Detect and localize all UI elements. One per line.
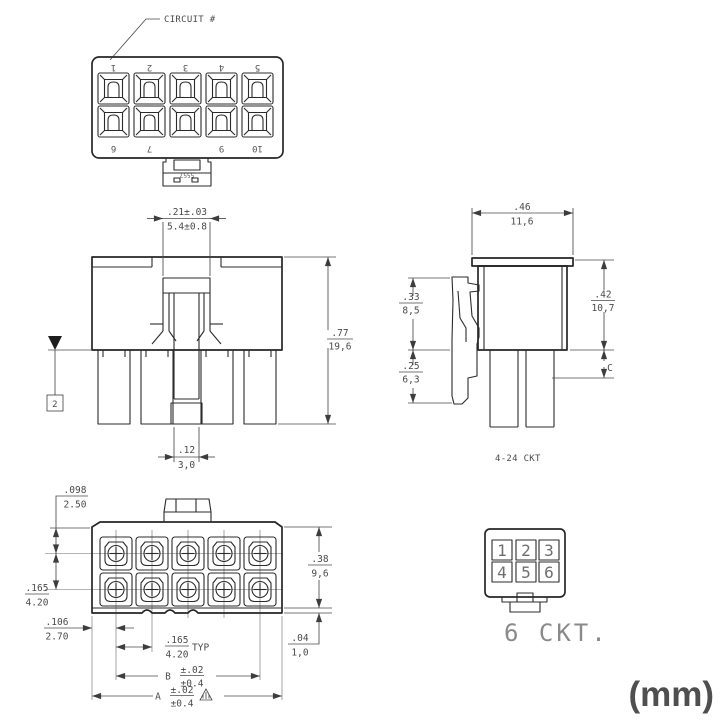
circuit-number-7: 7 — [147, 143, 152, 153]
dim-height-mm: 19,6 — [329, 342, 352, 353]
side-legs — [490, 350, 554, 427]
dim-side-width: .46 11,6 — [472, 202, 573, 255]
dim-face-height: .38 9,6 — [284, 527, 332, 613]
front-view: .21±.03 5.4±0.8 .77 19,6 .12 3,0 — [47, 207, 353, 471]
six-ckt-number-4: 4 — [497, 563, 507, 582]
dim-latch-lower-mm: 6,3 — [402, 375, 419, 386]
circuit-number-10: 10 — [252, 143, 263, 153]
dim-edge-col-mm: 2.70 — [46, 632, 69, 643]
dim-b-label: B — [165, 672, 171, 683]
circuit-number-4: 4 — [219, 62, 224, 72]
dim-edge-row-in: .098 — [64, 485, 87, 496]
dim-side-width-in: .46 — [513, 202, 530, 213]
dim-beam-in: .12 — [178, 445, 195, 456]
circuit-range-note: 4-24 CKT — [495, 454, 541, 464]
six-ckt-number-6: 6 — [544, 563, 554, 582]
center-latch-beam — [150, 278, 223, 424]
terminal-legs — [98, 350, 276, 424]
dim-col-pitch: .165 4.20 TYP — [116, 635, 209, 661]
dim-lip-mm: 1,0 — [291, 648, 308, 659]
dim-latch-upper: .33 8,5 — [399, 278, 450, 350]
flag-triangle-icon — [48, 336, 62, 350]
six-ckt-number-5: 5 — [521, 563, 531, 582]
mating-face-view: .098 2.50 .165 4.20 .106 2.70 .165 4.20 — [25, 485, 332, 710]
dim-a-in: ±.02 — [171, 685, 194, 696]
circuit-number-1: 1 — [111, 62, 116, 72]
dim-latch-lower-in: .25 — [402, 361, 419, 372]
dim-beam-width: .12 3,0 — [158, 427, 215, 471]
dim-a-mm: ±0.4 — [171, 699, 194, 710]
latch-tab: 5557 — [163, 158, 211, 186]
dim-latch-upper-mm: 8,5 — [402, 306, 419, 317]
dim-height-in: .77 — [331, 328, 348, 339]
dim-lip-in: .04 — [291, 633, 308, 644]
dim-col-pitch-in: .165 — [166, 635, 189, 646]
circuit-face-view: CIRCUIT # 1 2 3 4 5 6 7 9 10 5557 — [92, 15, 283, 186]
dim-beam-mm: 3,0 — [178, 460, 195, 471]
dim-latch-upper-in: .33 — [402, 292, 419, 303]
circuit-number-6: 6 — [111, 143, 116, 153]
dim-edge-to-row: .098 2.50 — [50, 485, 90, 554]
dim-side-body-height: .42 10,7 — [570, 260, 615, 350]
circuit-callout-label: CIRCUIT # — [164, 15, 216, 25]
revision-triangle-icon — [200, 689, 212, 700]
circuit-number-5: 5 — [255, 62, 260, 72]
circuit-number-3: 3 — [183, 62, 188, 72]
dim-overall-height: .77 19,6 — [278, 257, 353, 424]
ref-dim-c: C — [552, 350, 614, 378]
six-ckt-caption: 6 CKT. — [504, 619, 609, 647]
dim-lip: .04 1,0 — [288, 613, 319, 659]
circuit-callout-leader — [110, 19, 160, 60]
dim-latch-width: .21±.03 5.4±0.8 — [147, 207, 226, 276]
dim-row-pitch: .165 4.20 — [25, 554, 56, 609]
units-label: (mm) — [628, 675, 714, 714]
part-number-marking: 5557 — [179, 171, 194, 178]
dim-latch-width-mm: 5.4±0.8 — [167, 222, 207, 233]
flag-note-number: 2 — [52, 400, 58, 410]
dim-body-height-in: .42 — [594, 290, 611, 301]
circuit-number-2: 2 — [147, 62, 152, 72]
dim-edge-to-col: .106 2.70 — [44, 617, 134, 643]
side-flange — [472, 258, 573, 266]
face-top-latch — [164, 499, 211, 522]
circuit-number-9: 9 — [219, 143, 224, 153]
dim-row-pitch-in: .165 — [26, 583, 49, 594]
dim-face-height-in: .38 — [311, 554, 328, 565]
dim-side-width-mm: 11,6 — [511, 217, 534, 228]
dim-edge-row-mm: 2.50 — [64, 500, 87, 511]
flag-note-2: 2 — [47, 336, 92, 411]
dim-a: A ±.02 ±0.4 — [92, 685, 282, 710]
dim-row-pitch-mm: 4.20 — [26, 598, 49, 609]
dim-latch-lower: .25 6,3 — [399, 350, 452, 403]
six-ckt-view: 1 2 3 4 5 6 6 CKT. — [485, 529, 609, 647]
latch-hook-arm — [452, 277, 479, 404]
six-ckt-number-2: 2 — [521, 541, 531, 560]
dim-b-in: ±.02 — [181, 665, 204, 676]
face-body-outline — [92, 522, 282, 613]
dim-latch-width-in: .21±.03 — [167, 207, 207, 218]
drawing-canvas: CIRCUIT # 1 2 3 4 5 6 7 9 10 5557 — [0, 0, 720, 720]
ref-c-label: C — [607, 363, 613, 374]
dim-face-height-mm: 9,6 — [311, 569, 328, 580]
dim-a-label: A — [155, 692, 161, 703]
dim-col-pitch-mm: 4.20 — [166, 650, 189, 661]
technical-drawing-sheet: CIRCUIT # 1 2 3 4 5 6 7 9 10 5557 — [0, 0, 720, 720]
six-ckt-latch — [502, 593, 547, 612]
dim-body-height-mm: 10,7 — [592, 303, 615, 314]
front-body-outline — [92, 257, 282, 350]
side-body — [478, 266, 567, 350]
side-view: .46 11,6 .42 10,7 .33 8,5 .2 — [399, 202, 615, 464]
dim-col-pitch-typ: TYP — [192, 643, 209, 654]
dim-edge-col-in: .106 — [46, 617, 69, 628]
six-ckt-number-3: 3 — [544, 541, 554, 560]
six-ckt-number-1: 1 — [497, 541, 507, 560]
